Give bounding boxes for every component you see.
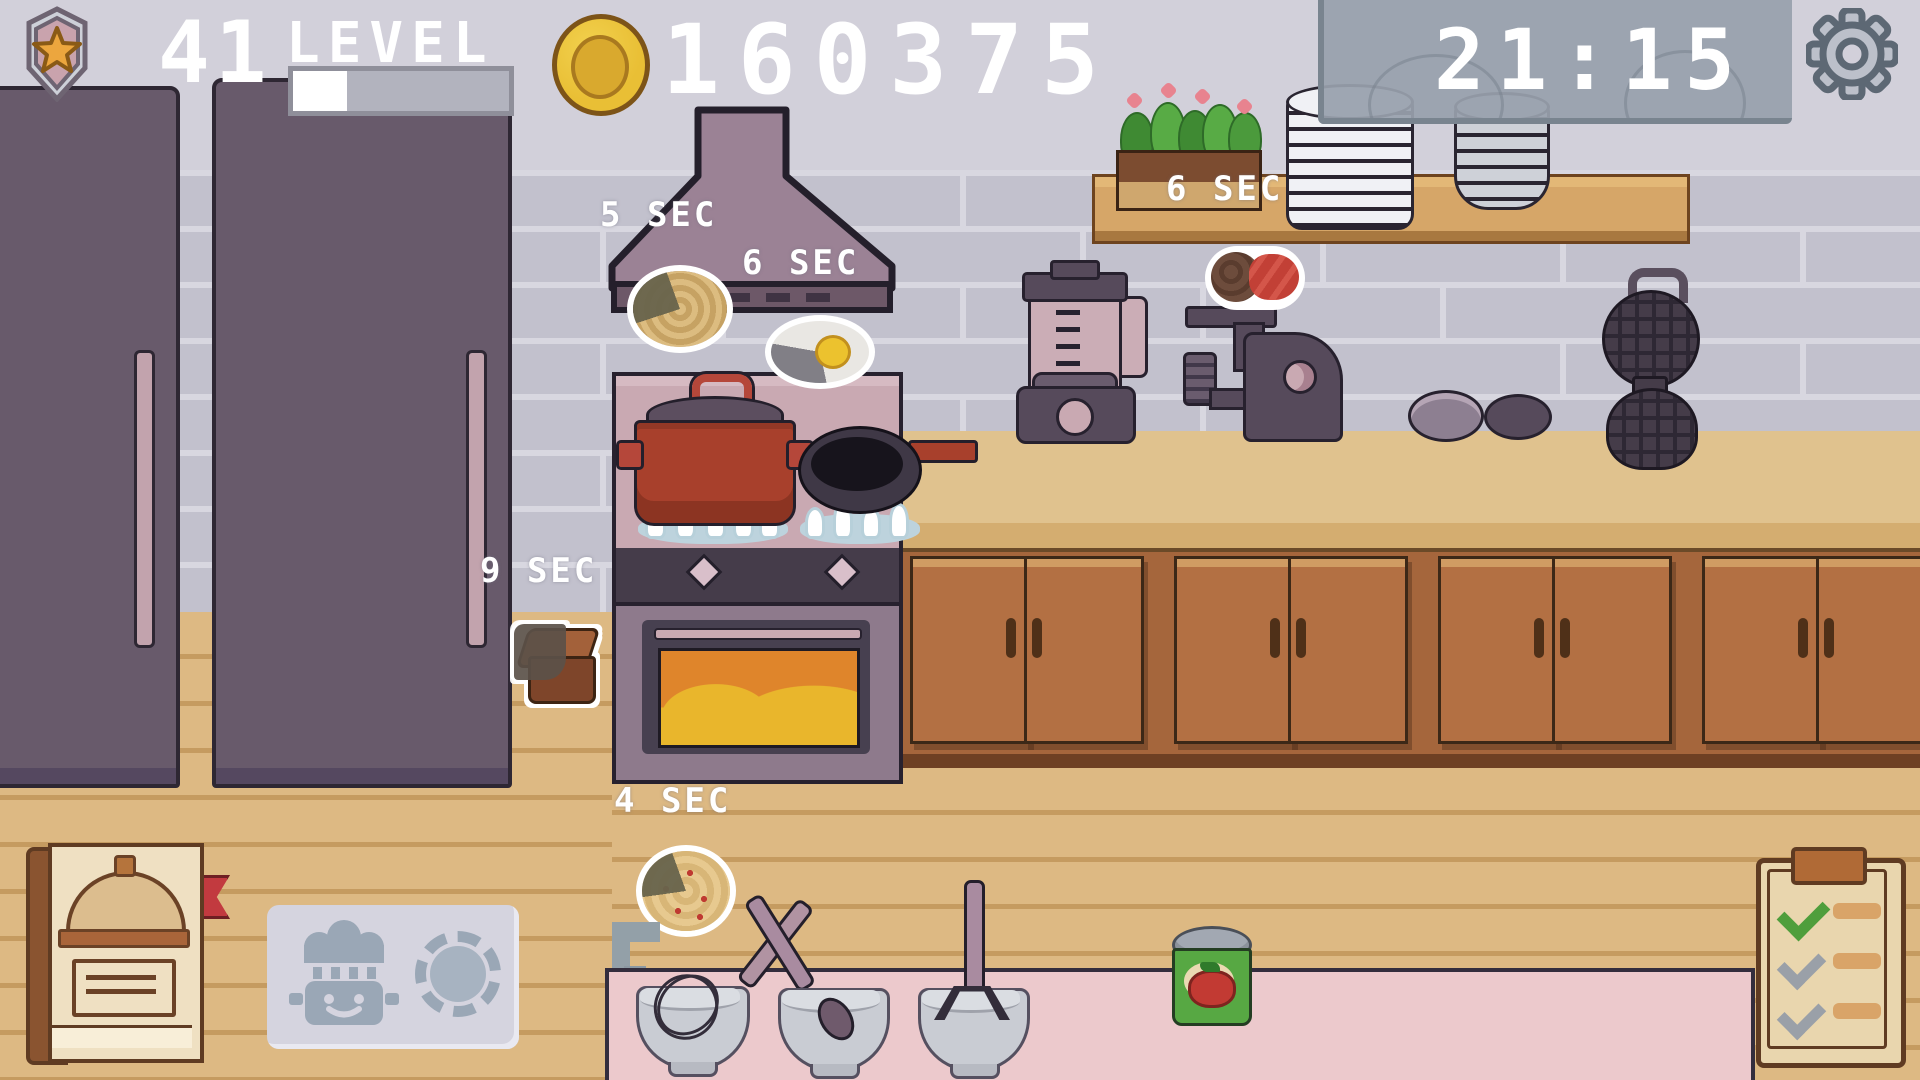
cabinet-handle (1798, 618, 1808, 658)
bowl-foot (668, 1062, 718, 1077)
bowl-rim (922, 990, 1020, 1013)
blender[interactable]: ✕ (1008, 258, 1144, 444)
cabinet-handle (1296, 618, 1306, 658)
bowl-foot (810, 1064, 860, 1079)
plate-icon-center (430, 946, 486, 1002)
oven-handle-bar (654, 628, 862, 640)
cooking-item-noodles[interactable] (633, 271, 727, 347)
coin-inner-ring (571, 35, 629, 99)
small-plate-flipped[interactable] (1484, 394, 1552, 440)
can-tomato (1188, 970, 1236, 1008)
counter-top (896, 431, 1920, 523)
cabinet-handle (1032, 618, 1042, 658)
checklist-bar (1833, 953, 1881, 969)
waffle-plate-bottom (1606, 388, 1698, 470)
waffle-iron[interactable] (1596, 268, 1700, 464)
cabinet-handle (1824, 618, 1834, 658)
book-cloche-tray (58, 929, 190, 948)
level-label: LEVEL (286, 16, 495, 72)
cabinet-door[interactable] (1552, 556, 1672, 744)
can-tomato-leaf (1200, 962, 1220, 972)
coin-count: 160375 (662, 12, 1117, 108)
cabinet-base-strip (896, 754, 1920, 768)
plant-flower (1159, 81, 1177, 99)
pan-interior (811, 437, 903, 491)
frying-pan[interactable] (798, 426, 922, 514)
blender-cap (1050, 260, 1100, 280)
soup-pot[interactable] (622, 374, 802, 524)
blender-ticks (1056, 310, 1080, 370)
oven-window (658, 648, 860, 748)
order-clipboard[interactable] (1756, 858, 1906, 1068)
timer-label-dishes: 6 SEC (1166, 172, 1283, 206)
tomato-can[interactable] (1170, 926, 1252, 1026)
cabinet-door[interactable] (1288, 556, 1408, 744)
meat-slices (1249, 254, 1299, 300)
gold-coin-icon (552, 14, 650, 116)
level-progress-bar (288, 66, 514, 116)
book-label-line (86, 989, 156, 994)
plant-flower (1193, 87, 1211, 105)
blender-button[interactable] (1056, 398, 1094, 436)
flame-spike (808, 510, 822, 536)
book-label-box (72, 959, 176, 1017)
mixing-bowl-masher[interactable] (916, 944, 1046, 1080)
cooking-item-fried-egg[interactable] (771, 321, 869, 383)
mixing-bowl-spoon[interactable] (776, 944, 906, 1080)
counter-edge (896, 523, 1920, 552)
cabinet-handle (1270, 618, 1280, 658)
clock-value: 21:15 (1434, 18, 1747, 102)
checklist-bar (1833, 903, 1881, 919)
cabinet-handle (1006, 618, 1016, 658)
star-badge-icon[interactable] (20, 6, 94, 102)
timer-label-bread: 9 SEC (480, 554, 597, 588)
timer-label-egg: 6 SEC (742, 246, 859, 280)
cooking-item-meat[interactable] (1205, 246, 1305, 310)
book-pages-edge (52, 1025, 192, 1048)
meat-grinder[interactable] (1183, 304, 1343, 440)
pot-handle-left (616, 440, 644, 470)
waffle-plate-top (1602, 290, 1700, 388)
station-card[interactable] (267, 905, 519, 1049)
game-screen: ✕ 5 SEC 6 SEC 6 SEC 9 SEC (0, 0, 1920, 1080)
level-value: 41 (158, 10, 272, 96)
clock-panel: 21:15 (1318, 0, 1792, 124)
masher-handle (964, 880, 985, 996)
gear-icon[interactable] (1806, 8, 1898, 100)
bowl-foot (950, 1064, 1000, 1079)
cooking-item-pizza[interactable] (642, 851, 730, 931)
cabinet-handle (1534, 618, 1544, 658)
egg-yolk (815, 335, 851, 369)
cabinet-door[interactable] (1024, 556, 1144, 744)
checklist-bar (1833, 1003, 1881, 1019)
level-progress-fill (293, 71, 347, 111)
grinder-dial (1283, 360, 1317, 394)
fridge-left-handle (134, 350, 155, 648)
fridge-right-handle (466, 350, 487, 648)
hook-side (612, 922, 630, 968)
oven[interactable] (612, 602, 903, 784)
book-label-line (86, 975, 156, 980)
chef-pot-icon (289, 917, 399, 1031)
book-cloche-knob (114, 855, 136, 877)
flame-spike (892, 506, 906, 536)
timer-label-pizza: 4 SEC (614, 784, 731, 818)
plate-icon (415, 931, 501, 1017)
plant-flower (1125, 91, 1143, 109)
small-plate[interactable] (1408, 390, 1484, 442)
cabinet-handle (1560, 618, 1570, 658)
bread-timer-wedge (514, 624, 566, 680)
mixing-bowl-whisk[interactable] (636, 940, 786, 1080)
clipboard-clip (1791, 847, 1867, 885)
cooking-item-bread[interactable] (512, 622, 600, 706)
recipe-book[interactable] (26, 843, 226, 1061)
flame-spike (864, 510, 878, 536)
stove-control-panel (612, 548, 903, 606)
timer-label-noodles: 5 SEC (600, 198, 717, 232)
pot-body (634, 420, 796, 526)
